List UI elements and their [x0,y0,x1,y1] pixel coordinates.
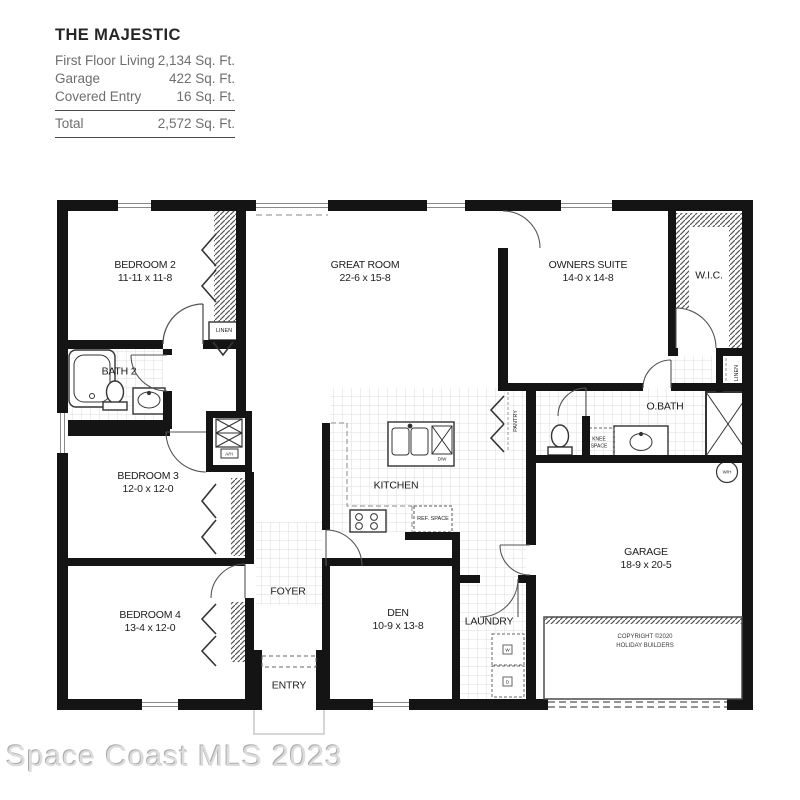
total-value: 2,572 Sq. Ft. [158,115,235,133]
area-row: First Floor Living 2,134 Sq. Ft. [55,52,235,70]
room-label-owners-suite: OWNERS SUITE14-0 x 14-8 [549,259,628,285]
room-label-bedroom3: BEDROOM 312-0 x 12-0 [117,470,178,496]
garage-apron [544,617,742,699]
total-label: Total [55,115,84,133]
room-label-great-room: GREAT ROOM22-6 x 15-8 [331,259,400,285]
area-row-value: 2,134 Sq. Ft. [158,52,235,70]
area-row-label: Covered Entry [55,88,141,106]
dishwasher-label: D/W [438,457,447,462]
room-label-bath2: BATH 2 [102,365,137,378]
room-label-bedroom2: BEDROOM 211-11 x 11-8 [114,259,175,285]
linen-label: LINEN [216,328,232,334]
area-row-value: 422 Sq. Ft. [169,70,235,88]
sink-bath2 [133,388,165,414]
divider [55,110,235,111]
washer-label: W [505,647,509,652]
room-label-wic: W.I.C. [695,269,722,282]
plan-title: THE MAJESTIC [55,26,235,45]
room-label-foyer: FOYER [270,585,305,598]
washer-dryer [492,634,524,697]
divider [55,137,235,138]
room-label-laundry: LAUNDRY [465,615,514,628]
room-label-den: DEN10-9 x 13-8 [373,607,424,633]
sink-obath [614,426,668,458]
copyright-note: COPYRIGHT ©2020 HOLIDAY BUILDERS [616,633,673,651]
area-row-value: 16 Sq. Ft. [176,88,235,106]
area-row: Covered Entry 16 Sq. Ft. [55,88,235,106]
water-heater-label: W/H [723,470,732,475]
floor-plan-image: THE MAJESTIC First Floor Living 2,134 Sq… [0,0,800,800]
room-label-entry: ENTRY [272,679,306,692]
total-row: Total 2,572 Sq. Ft. [55,115,235,133]
air-handler-label: A/H [225,451,233,456]
room-label-garage: GARAGE18-9 x 20-5 [621,546,672,572]
entry-door [262,656,316,667]
area-row: Garage 422 Sq. Ft. [55,70,235,88]
covered-entry-outline [254,710,324,734]
area-row-label: Garage [55,70,100,88]
room-label-obath: O.BATH [646,400,683,413]
ref-space-label: REF. SPACE [417,516,449,522]
knee-space-label: KNEE SPACE [586,437,612,450]
mls-watermark: Space Coast MLS 2023 [6,740,343,774]
title-block: THE MAJESTIC First Floor Living 2,134 Sq… [55,26,235,142]
dryer-label: D [506,679,509,684]
room-label-bedroom4: BEDROOM 413-4 x 12-0 [119,609,180,635]
pantry-label: PANTRY [513,410,519,432]
range [350,510,386,532]
area-row-label: First Floor Living [55,52,155,70]
room-label-kitchen: KITCHEN [374,479,419,492]
linen-label-obath: LINEN [734,365,740,381]
